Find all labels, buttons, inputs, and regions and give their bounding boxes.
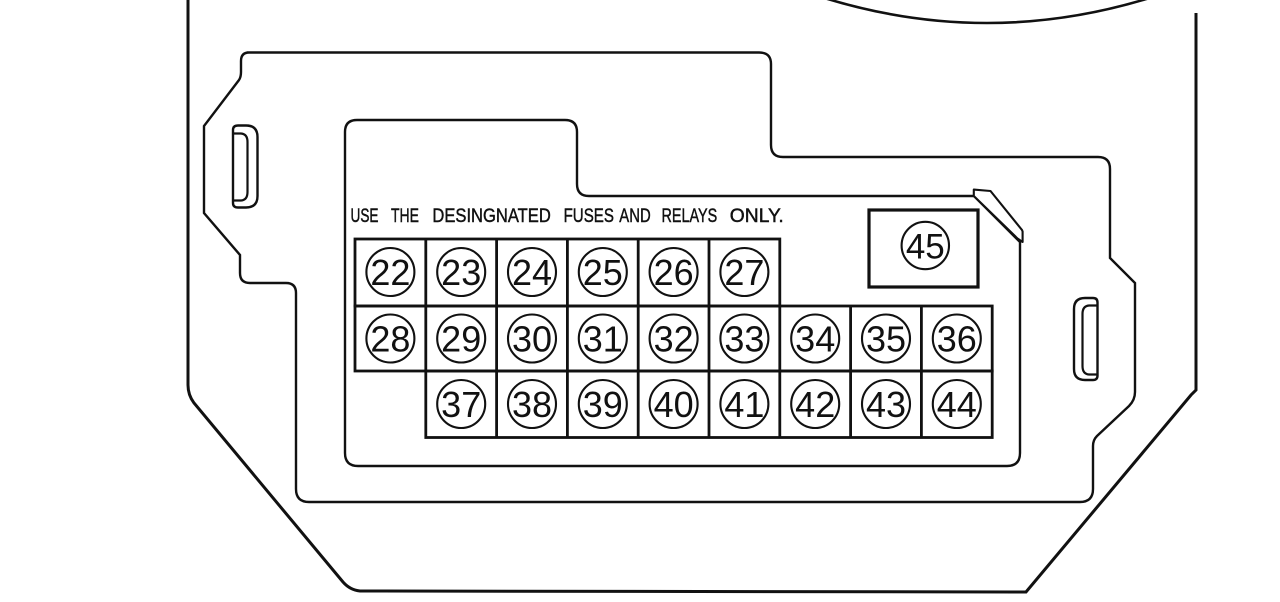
svg-text:USE: USE bbox=[351, 205, 379, 227]
svg-text:37: 37 bbox=[441, 384, 481, 425]
svg-text:35: 35 bbox=[866, 319, 906, 360]
svg-text:42: 42 bbox=[795, 384, 835, 425]
svg-text:22: 22 bbox=[370, 252, 410, 293]
svg-text:34: 34 bbox=[795, 319, 835, 360]
svg-text:FUSES: FUSES bbox=[564, 205, 614, 227]
svg-text:45: 45 bbox=[906, 228, 945, 267]
svg-text:25: 25 bbox=[583, 252, 623, 293]
svg-text:32: 32 bbox=[654, 319, 694, 360]
svg-text:41: 41 bbox=[724, 384, 764, 425]
svg-text:24: 24 bbox=[512, 252, 552, 293]
svg-text:DESINGNATED: DESINGNATED bbox=[432, 205, 550, 227]
svg-text:43: 43 bbox=[866, 384, 906, 425]
svg-text:38: 38 bbox=[512, 384, 552, 425]
svg-text:AND: AND bbox=[619, 205, 650, 227]
svg-text:ONLY.: ONLY. bbox=[730, 205, 784, 227]
svg-text:28: 28 bbox=[370, 319, 410, 360]
svg-text:30: 30 bbox=[512, 319, 552, 360]
svg-text:23: 23 bbox=[441, 252, 481, 293]
svg-text:39: 39 bbox=[583, 384, 623, 425]
svg-text:27: 27 bbox=[724, 252, 764, 293]
svg-text:RELAYS: RELAYS bbox=[662, 205, 718, 227]
svg-text:THE: THE bbox=[391, 205, 419, 227]
svg-text:26: 26 bbox=[654, 252, 694, 293]
svg-text:33: 33 bbox=[724, 319, 764, 360]
svg-text:44: 44 bbox=[937, 384, 977, 425]
svg-text:31: 31 bbox=[583, 319, 623, 360]
svg-text:40: 40 bbox=[654, 384, 694, 425]
svg-text:29: 29 bbox=[441, 319, 481, 360]
svg-text:36: 36 bbox=[937, 319, 977, 360]
